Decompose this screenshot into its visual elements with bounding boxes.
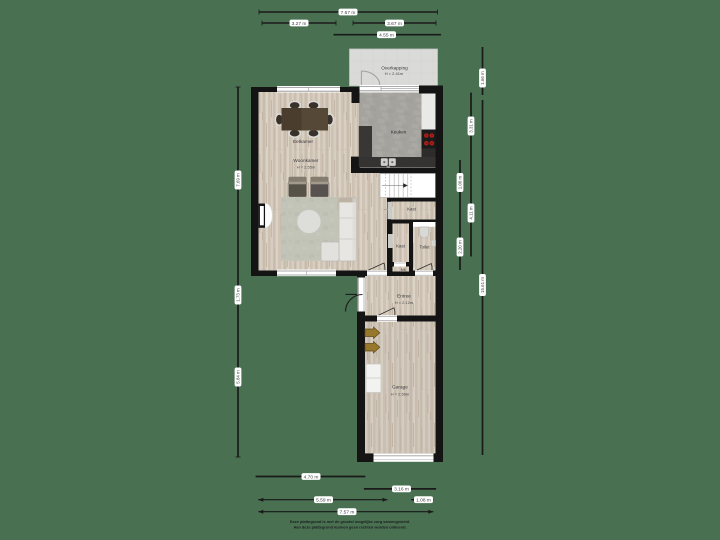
svg-text:7.67 m: 7.67 m <box>341 10 356 16</box>
svg-text:2.20 m: 2.20 m <box>458 240 463 254</box>
svg-text:H = 2.12m: H = 2.12m <box>395 300 414 305</box>
svg-text:15.61 m: 15.61 m <box>480 277 485 293</box>
svg-text:MK: MK <box>401 268 407 272</box>
svg-text:4.55 m: 4.55 m <box>379 33 394 39</box>
svg-text:Woonkamer: Woonkamer <box>293 158 319 163</box>
svg-text:Entree: Entree <box>397 294 411 299</box>
svg-text:H = 2.56m: H = 2.56m <box>391 392 410 397</box>
svg-text:Deze plattegrond is met de gro: Deze plattegrond is met de grootst mogel… <box>290 519 410 524</box>
svg-text:3.31 m: 3.31 m <box>469 119 474 133</box>
svg-text:Kast: Kast <box>396 244 405 249</box>
svg-text:Kast: Kast <box>407 207 416 212</box>
svg-text:H = 2.55m: H = 2.55m <box>297 165 316 170</box>
svg-text:3.16 m: 3.16 m <box>394 487 409 493</box>
svg-text:Garage: Garage <box>392 385 408 390</box>
svg-text:Aan deze plattegrond kunnen ge: Aan deze plattegrond kunnen geen rechten… <box>293 525 406 530</box>
svg-text:1.73 m: 1.73 m <box>236 288 241 302</box>
svg-text:5.84 m: 5.84 m <box>236 370 241 384</box>
svg-text:1.08 m: 1.08 m <box>416 498 431 504</box>
svg-text:1.06 m: 1.06 m <box>458 175 463 189</box>
svg-text:Overkapping: Overkapping <box>381 65 408 70</box>
svg-text:7.69 m: 7.69 m <box>236 173 241 187</box>
svg-text:Keuken: Keuken <box>391 130 407 135</box>
svg-text:5.59 m: 5.59 m <box>316 498 331 504</box>
svg-text:H = 2.41m: H = 2.41m <box>385 71 404 76</box>
svg-text:Eetkamer: Eetkamer <box>293 139 313 144</box>
svg-text:3.27 m: 3.27 m <box>292 21 307 27</box>
svg-text:7.57 m: 7.57 m <box>340 510 355 516</box>
svg-text:3.67 m: 3.67 m <box>387 21 402 27</box>
svg-text:Toilet: Toilet <box>419 245 430 250</box>
svg-text:1.66 m: 1.66 m <box>480 71 485 85</box>
svg-text:4.70 m: 4.70 m <box>304 474 319 480</box>
svg-text:4.11 m: 4.11 m <box>469 206 474 219</box>
